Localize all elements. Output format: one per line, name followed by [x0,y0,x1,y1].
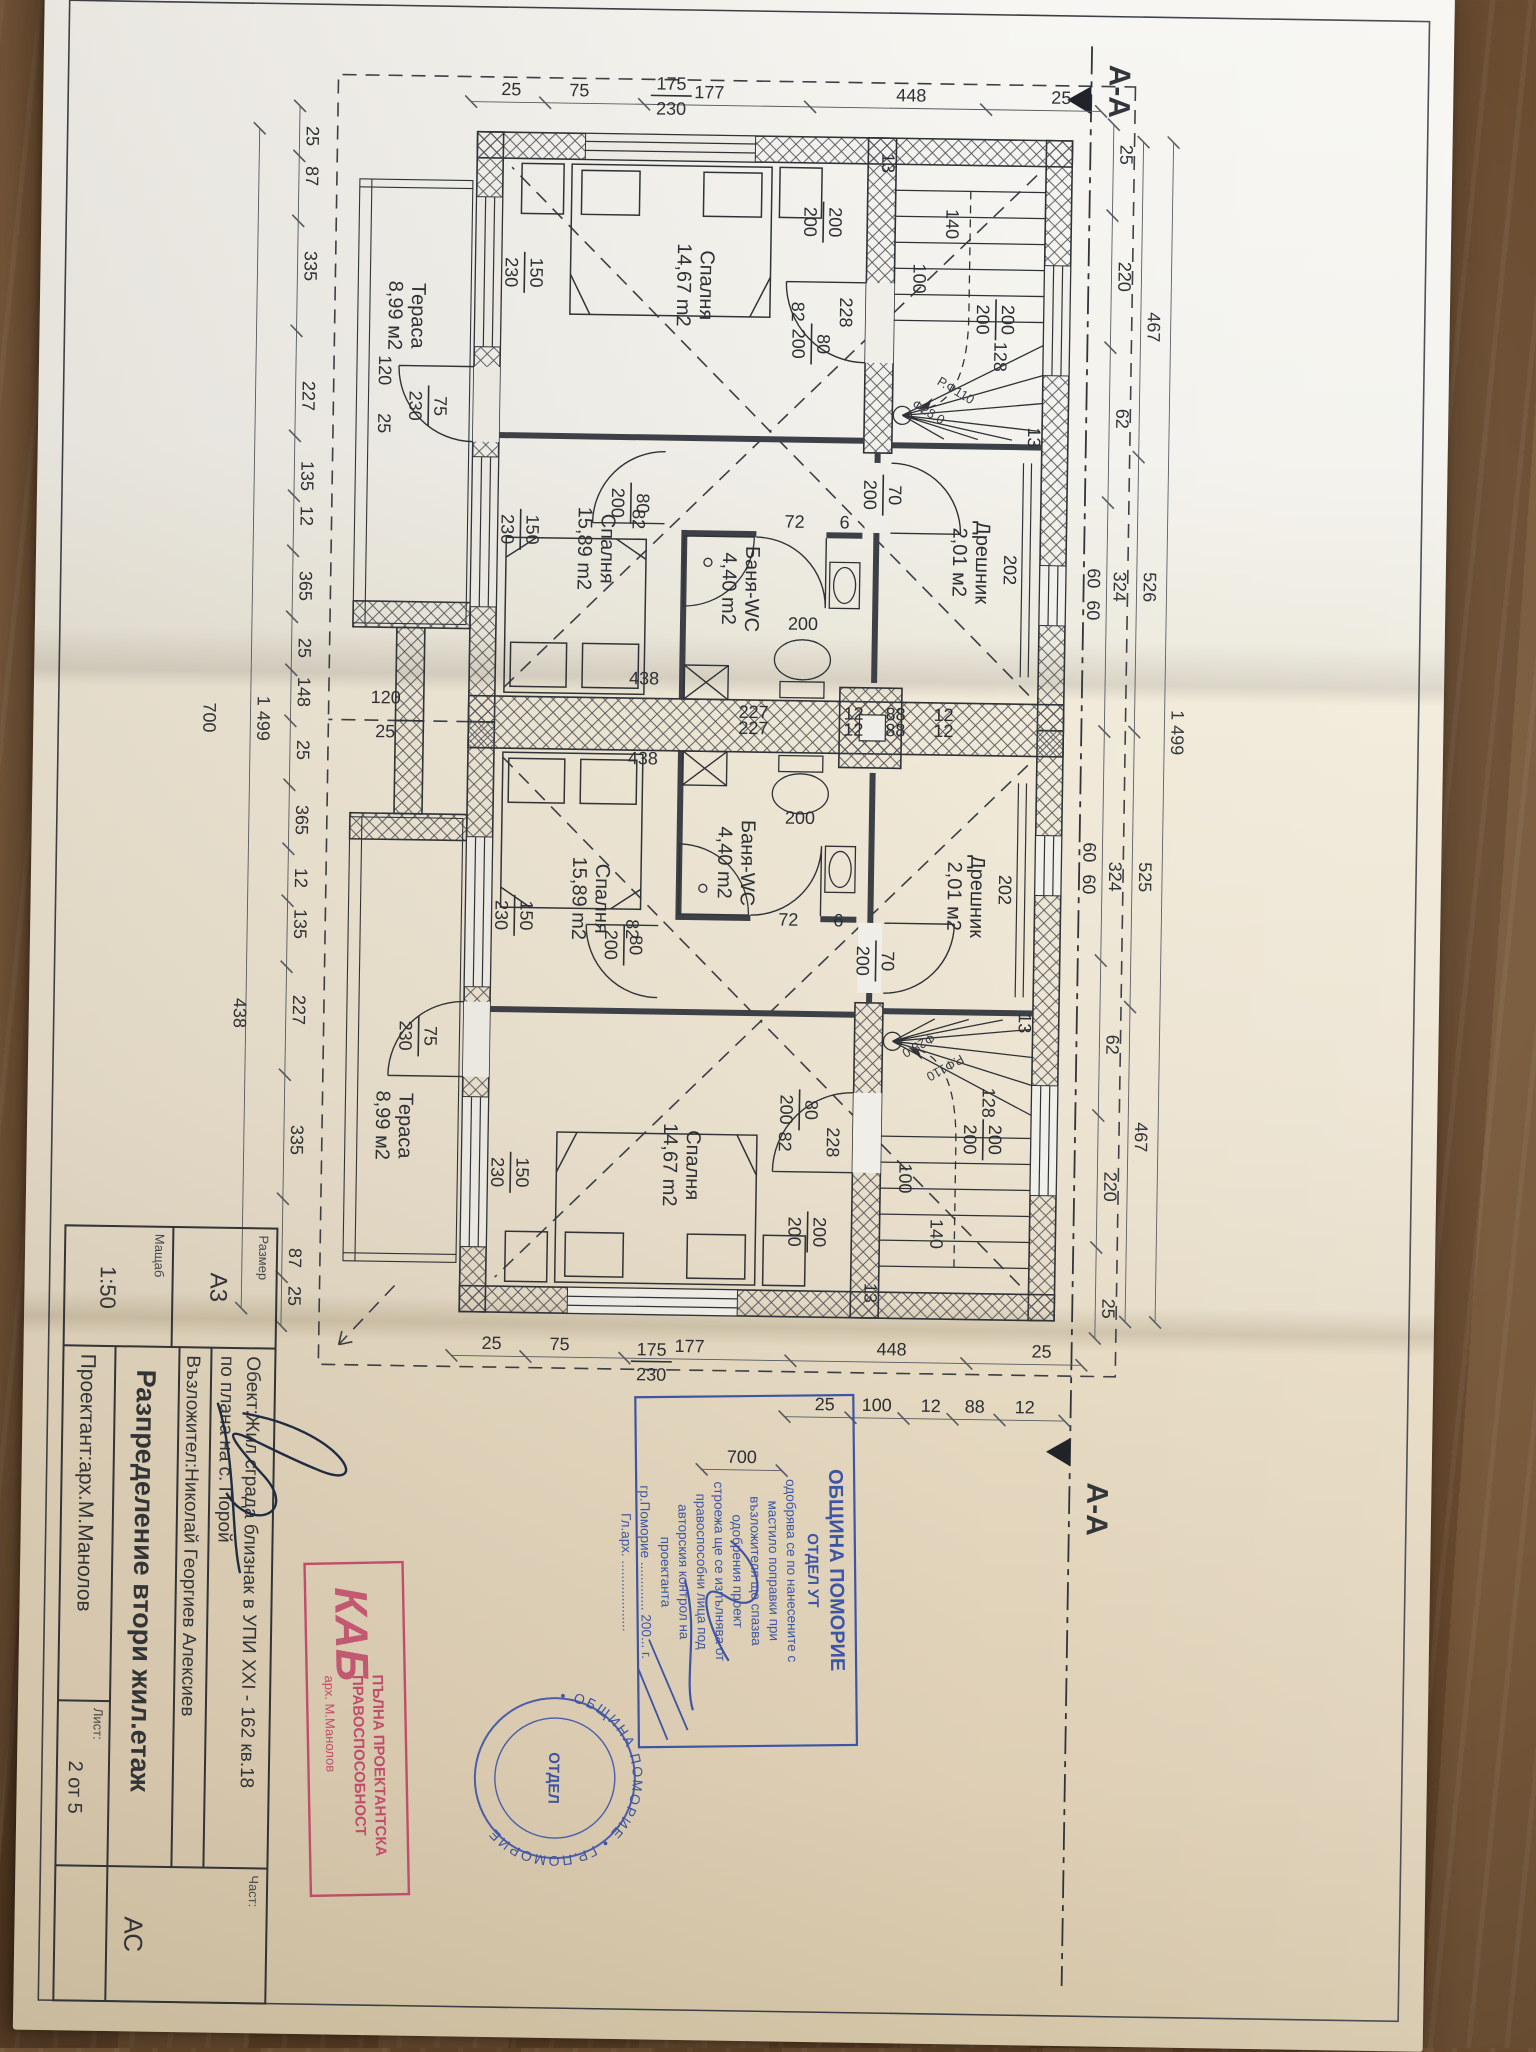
duct-shaft [684,665,729,700]
municipality-stamp-line: авторския контрол на [675,1504,691,1640]
municipality-stamp-line: строежа ще се изпълнява от [711,1482,728,1662]
size-label: Размер [256,1235,272,1280]
svg-text:200: 200 [809,1217,829,1247]
room-label: Дрешник2,01 м2 [947,521,993,605]
svg-text:230: 230 [497,514,517,544]
municipality-stamp-line: възложителя ще спазва [747,1496,764,1646]
dimension-label: 448 [896,85,926,105]
municipality-stamp-line: одобрения проект [730,1514,746,1628]
svg-text:200: 200 [800,207,820,237]
dimension-label: 227 [298,381,318,411]
room-label: Тераса8,99 м2 [383,281,429,351]
opening-size-tag: 150230 [487,1151,533,1193]
svg-text:150: 150 [512,1157,532,1187]
dimension-label: 100 [862,1395,892,1415]
dimension-label: 100 [909,263,929,293]
svg-text:230: 230 [636,1364,666,1384]
svg-text:150: 150 [522,514,542,544]
svg-text:175: 175 [656,73,686,93]
opening-size-tag: 200200 [960,1119,1006,1161]
dimension-label: 227 [738,718,768,738]
room-label: Тераса8,99 м2 [371,1090,417,1160]
svg-text:230: 230 [656,98,686,118]
dimension-label: 87 [302,166,322,186]
dimension-label: 128 [990,342,1010,372]
license-line1: ПЪЛНА ПРОЕКТАНТСКА [369,1674,389,1856]
svg-text:200: 200 [985,1125,1005,1155]
opening-size-tag: 200200 [784,1211,830,1253]
dimension-label: 88 [885,720,905,740]
seal-center-text: ОТДЕЛ [544,1752,562,1804]
title-block: Размер А3 Мащаб 1:50 Обект:Жил.сграда бл… [53,1225,277,2003]
dwelling-unit-geometry [351,130,1072,731]
dimension-label: 12 [1015,1397,1035,1417]
designer-line: Проектант:арх.М.Манолов [72,1354,99,1612]
municipality-stamp-line: мастило поправки при [765,1501,781,1642]
license-line2: ПРАВОСПОСОБНОСТ [349,1675,369,1836]
svg-text:230: 230 [405,391,425,421]
dimension-label: 6 [839,512,849,532]
dimension-label: 82 [788,302,808,322]
dimension-label: 60 [1084,568,1104,588]
dimension-label: 62 [1112,409,1132,429]
dimension-label: 13 [878,153,898,173]
drawing-title: Разпределение втори жил.етаж [125,1369,162,1793]
mirrored-unit-geometry [342,720,1063,1321]
dimension-label: 25 [1051,88,1071,108]
svg-text:200: 200 [788,329,808,359]
bathroom-fixtures [682,536,860,699]
round-seal: • ОБЩИНА ПОМОРИЕ • ГР.ПОМОРИЕ ОТДЕЛ [473,1686,647,1871]
dimension-label: 324 [1109,572,1129,602]
dimension-label: 6 [833,910,843,930]
svg-text:150: 150 [526,257,546,287]
dimension-label: 140 [942,209,962,239]
dimension-label: 177 [674,1336,704,1356]
dimension-label: 100 [895,1163,915,1193]
dimension-label: 13 [1024,427,1044,447]
dimension-label: 128 [978,1088,998,1118]
dimension-label: 467 [1131,1122,1151,1152]
dimension-label: 525 [1135,862,1155,892]
dimension-label: 12 [291,868,311,888]
svg-text:200: 200 [973,304,993,334]
room-label: Баня-WC4,40 m2 [717,545,763,632]
dimension-label: 220 [1114,262,1134,292]
dimension-label: 200 [788,614,818,634]
room-label: Дрешник2,01 м2 [942,855,988,939]
opening-size-tag: 80200 [788,323,834,365]
dimension-label: 202 [995,875,1015,905]
svg-text:200: 200 [852,946,872,976]
municipality-stamp-line: Гл.арх. ................... [618,1513,634,1632]
svg-text:200: 200 [825,207,845,237]
dimension-label: 135 [297,461,317,491]
municipality-stamp-line: одобрява се по нанесените с [783,1479,800,1662]
dimension-label: 202 [1000,555,1020,585]
dimension-label: 82 [622,919,642,939]
svg-text:230: 230 [395,1020,415,1050]
dimension-label: 25 [1031,1342,1051,1362]
dimension-label: 25 [815,1394,835,1414]
svg-text:175: 175 [636,1339,666,1359]
dimension-label: 335 [300,251,320,281]
dimension-label: 25 [1098,1299,1118,1319]
section-label: А-А [1102,64,1136,118]
dimension-label: 75 [549,1334,569,1354]
dimension-label: 324 [1105,862,1125,892]
opening-size-tag: 200200 [972,299,1018,341]
dimension-label: 467 [1143,312,1163,342]
sheet-value: 2 от 5 [63,1760,86,1814]
dimension-label: 25 [302,126,322,146]
license-stamp: КАБ ПЪЛНА ПРОЕКТАНТСКА ПРАВОСПОСОБНОСТ а… [305,1562,409,1896]
dimension-label: 82 [628,509,648,529]
dimension-label: 438 [230,998,250,1028]
opening-size-tag: 150230 [491,894,537,936]
dimension-label: 120 [375,355,395,385]
svg-text:200: 200 [776,1094,796,1124]
municipality-stamp-line: гр.Поморие ............. 200... г. [637,1485,654,1659]
dimension-label: 60 [1079,874,1099,894]
dimension-label: 1 499 [1167,710,1188,755]
dimension-label: 25 [374,413,394,433]
dimension-label: 365 [292,805,312,835]
opening-size-tag: 175230 [631,1339,673,1385]
room-label: Спалня14,67 m2 [672,243,718,327]
opening-size-tag: 70200 [860,474,906,516]
svg-text:200: 200 [784,1217,804,1247]
opening-size-tag: 150230 [501,252,547,294]
opening-size-tag: 80200 [776,1089,822,1131]
dimension-label: 12 [843,719,863,739]
room-label: Спалня15,89 m2 [567,856,613,940]
svg-text:70: 70 [885,485,905,505]
dimension-label: 1 499 [253,696,274,741]
dimension-label: 148 [294,677,314,707]
dimension-label: 228 [836,297,856,327]
size-value: А3 [204,1273,231,1303]
dimension-label: 12 [921,1396,941,1416]
drawing-paper-sheet: А-А А-А [13,0,1455,2052]
room-label: Спалня14,67 m2 [658,1123,704,1207]
svg-text:200: 200 [998,305,1018,335]
svg-text:200: 200 [601,930,621,960]
svg-text:230: 230 [487,1157,507,1187]
part-label: Част: [246,1875,262,1907]
dimension-label: 12 [933,721,953,741]
dimension-label: 88 [965,1396,985,1416]
dimension-label: 177 [694,82,724,102]
opening-size-tag: 200200 [800,201,846,243]
svg-text:75: 75 [420,1026,440,1046]
svg-text:75: 75 [430,396,450,416]
client-line: Възложител:Николай Георгиев Алексиев [177,1355,204,1716]
dimension-label: 60 [1083,600,1103,620]
floor-plan-drawing: А-А А-А [13,0,1455,2052]
municipality-stamp-line: проектанта [658,1537,674,1608]
dimension-label: 200 [785,808,815,828]
dimension-label: 140 [926,1219,946,1249]
kab-logo: КАБ [325,1587,379,1682]
svg-text:70: 70 [878,951,898,971]
dimension-label: 700 [199,702,219,732]
license-name: арх. М.Манолов [322,1675,339,1772]
dimension-label: 72 [778,909,798,929]
section-arrow-right [1046,1438,1070,1466]
dimension-label: 13 [860,1283,880,1303]
dimension-label: 60 [1079,842,1099,862]
dimension-label: 75 [569,80,589,100]
dimension-label: 13 [1015,1013,1035,1033]
municipality-stamp-line: ОБЩИНА ПОМОРИЕ [824,1469,848,1672]
svg-text:200: 200 [608,488,628,518]
part-value: АС [118,1916,149,1952]
scale-label: Мащаб [152,1234,168,1278]
dimension-label: 62 [1102,1035,1122,1055]
dimension-label: 25 [501,79,521,99]
dimension-label: 526 [1139,572,1159,602]
dimension-label: 700 [727,1447,757,1467]
svg-text:230: 230 [501,257,521,287]
opening-size-tag: 75230 [405,385,451,427]
wardrobe-rail [1020,463,1031,677]
dimension-label: 448 [876,1339,906,1359]
dimension-label: 82 [775,1131,795,1151]
section-label: А-А [1080,1482,1114,1536]
dimension-label: 438 [628,748,658,768]
svg-text:150: 150 [516,900,536,930]
dimension-label: 25 [481,1333,501,1353]
opening-size-tag: 75230 [395,1015,441,1057]
dimension-label: 25 [1116,145,1136,165]
svg-text:200: 200 [960,1124,980,1154]
opening-size-tag: 175230 [650,73,692,119]
dimension-label: 120 [371,687,401,707]
municipality-stamp-line: правоспособни лица под [693,1493,710,1649]
dimension-label: 87 [285,1248,305,1268]
opening-size-tag: 70200 [852,940,898,982]
dimension-label: 227 [289,995,309,1025]
dimension-label: 25 [375,721,395,741]
dimension-label: 438 [629,668,659,688]
dimension-label: 228 [823,1127,843,1157]
dimension-label: 135 [290,909,310,939]
dimension-label: 25 [293,740,313,760]
svg-text:230: 230 [491,900,511,930]
svg-text:80: 80 [801,1100,821,1120]
dimension-label: 12 [296,506,316,526]
room-label: Баня-WC4,40 m2 [713,819,759,906]
dimension-label: 72 [784,512,804,532]
dimension-label: 365 [295,571,315,601]
double-bed [520,163,822,318]
dimension-label: 25 [294,638,314,658]
svg-text:200: 200 [860,480,880,510]
scale-value: 1:50 [95,1266,121,1309]
municipality-stamp-line: ОТДЕЛ УТ [804,1533,822,1608]
svg-text:80: 80 [813,334,833,354]
dimension-label: 220 [1100,1172,1120,1202]
dimension-label: 335 [287,1125,307,1155]
sheet-label: Лист: [90,1708,105,1740]
room-label: Спалня15,89 m2 [572,507,618,591]
opening-size-tag: 150230 [497,509,543,551]
dimension-label: 25 [284,1286,304,1306]
